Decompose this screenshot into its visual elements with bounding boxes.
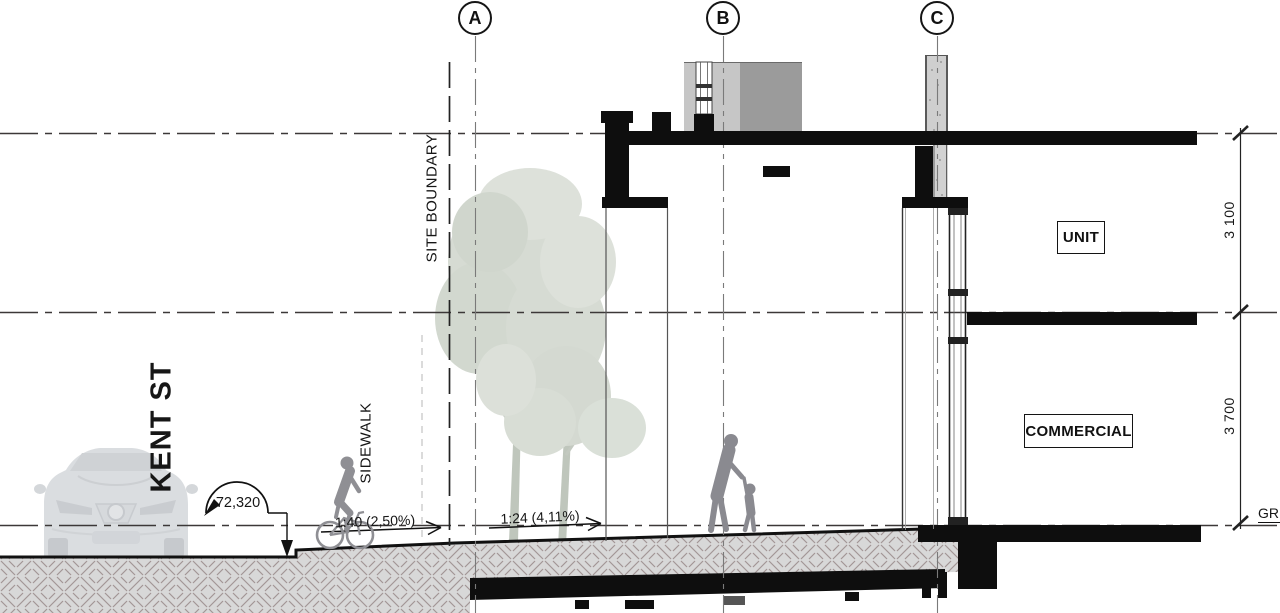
drawing-linework xyxy=(0,0,1280,613)
site-boundary-label: SITE BOUNDARY xyxy=(424,134,441,263)
grid-bubble-b: B xyxy=(706,1,740,35)
facade-lines xyxy=(606,208,934,541)
room-label: UNIT xyxy=(1063,229,1099,246)
dimension-lower: 3 700 xyxy=(1221,397,1237,435)
sidewalk-label: SIDEWALK xyxy=(358,403,375,484)
slope-sidewalk-label: 1:40 (2,50%) xyxy=(335,512,416,531)
grid-label: C xyxy=(931,8,944,29)
storefront-glazing xyxy=(948,208,968,525)
grid-label: A xyxy=(469,8,482,29)
building-structure xyxy=(601,111,1201,542)
grid-bubble-a: A xyxy=(458,1,492,35)
level-lines xyxy=(0,134,1280,526)
pedestrians-icon xyxy=(711,434,756,530)
section-drawing: A B C KENT ST SIDEWALK SITE BOUNDARY 3 1… xyxy=(0,0,1280,613)
room-label: COMMERCIAL xyxy=(1025,423,1131,440)
dimension-upper: 3 100 xyxy=(1221,201,1237,239)
grid-bubble-c: C xyxy=(920,1,954,35)
room-tag-unit: UNIT xyxy=(1057,221,1105,254)
road-level-value: 72,320 xyxy=(216,495,260,511)
dimension-line xyxy=(1233,126,1248,530)
ground-level-label: GR xyxy=(1258,505,1280,523)
grid-label: B xyxy=(717,8,730,29)
tree-icon xyxy=(435,168,646,546)
room-tag-commercial: COMMERCIAL xyxy=(1024,414,1133,448)
level-marker-icon xyxy=(204,482,293,557)
street-label: KENT ST xyxy=(146,361,179,492)
